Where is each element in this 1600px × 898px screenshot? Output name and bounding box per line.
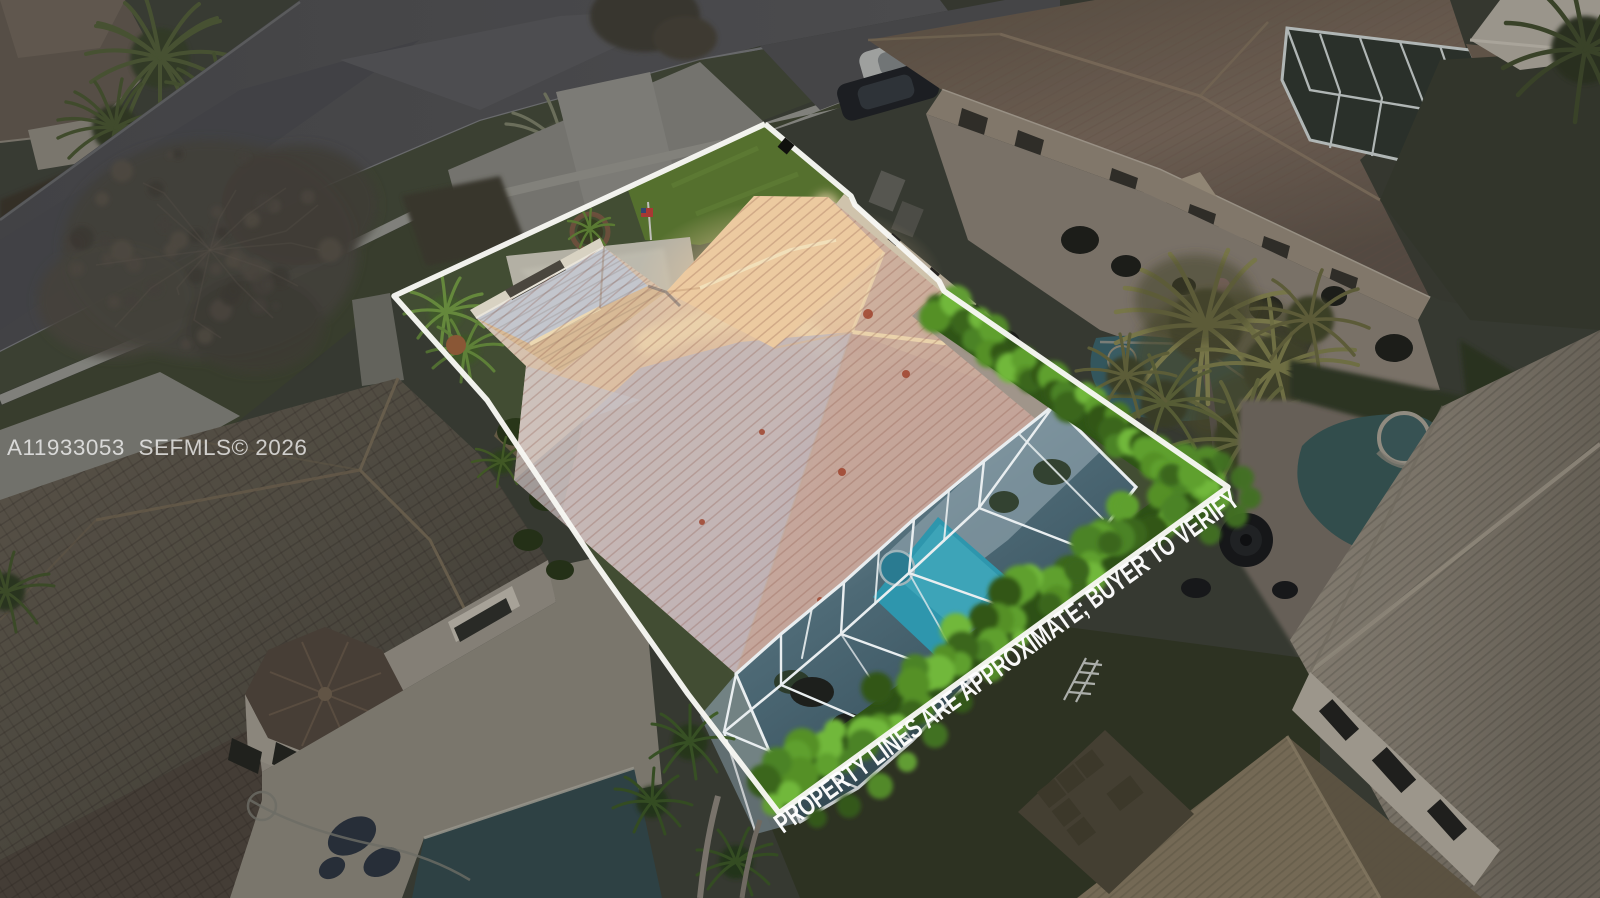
svg-text:A11933053 SEFMLS© 2026: A11933053 SEFMLS© 2026	[7, 435, 307, 460]
